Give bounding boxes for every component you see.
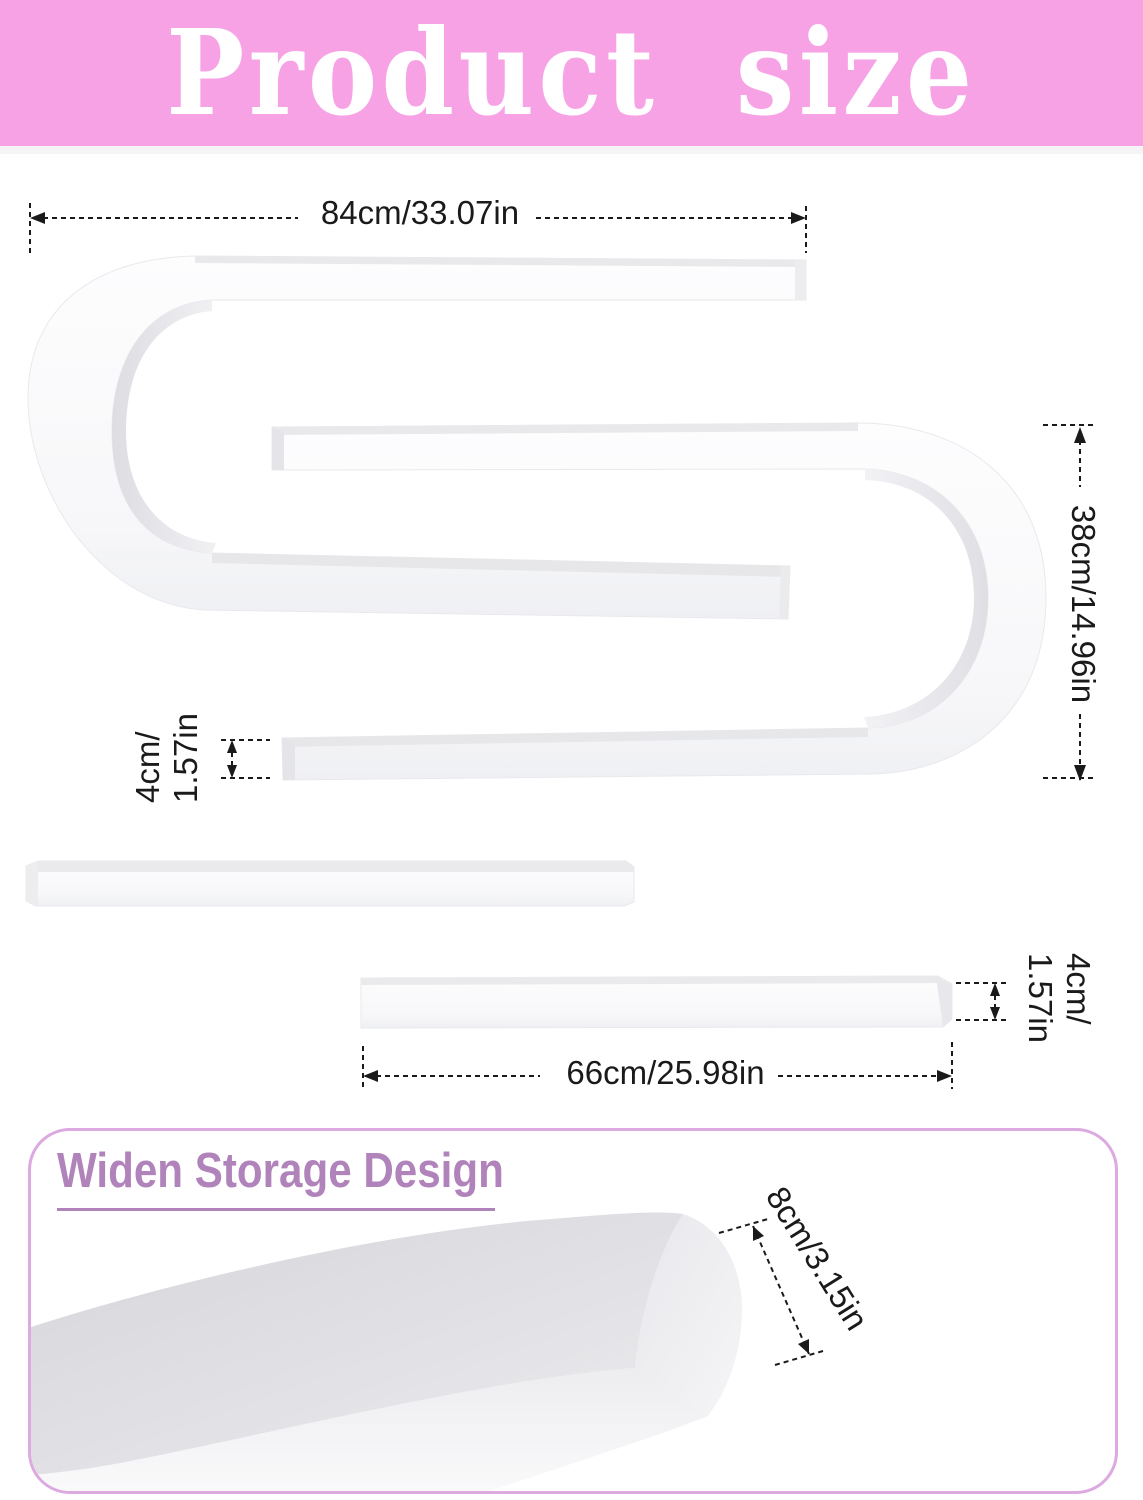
storage-card: Widen Storage Design 8cm/3.15in: [28, 1128, 1118, 1494]
loose-bar-2: [361, 976, 952, 1028]
size-diagram: [0, 0, 1143, 1120]
dim-left-thickness-arrows: [227, 740, 237, 778]
product-size-infographic: Product size: [0, 0, 1143, 1500]
dim-right-thickness-arrows: [990, 983, 1000, 1020]
dim-top-width-label: 84cm/33.07in: [300, 194, 540, 232]
dim-right-thickness-line: [956, 983, 1007, 1020]
rack-lower-bottom-end-face: [282, 738, 295, 780]
rack-lower-end-face: [272, 427, 284, 470]
storage-card-title: Widen Storage Design: [57, 1143, 504, 1199]
dim-height-label: 38cm/14.96in: [1060, 488, 1106, 720]
rack-upper-end-face: [795, 260, 806, 300]
loose-bar-1: [26, 861, 634, 906]
storage-card-underline: [57, 1208, 495, 1211]
dim-left-thickness-label: 4cm/ 1.57in: [126, 700, 208, 815]
dim-right-thickness-label: 4cm/ 1.57in: [1018, 942, 1100, 1054]
dim-bottom-width-label: 66cm/25.98in: [548, 1054, 783, 1092]
loose-bar-1-bevel: [26, 861, 634, 872]
dim-left-thickness-line: [221, 740, 270, 778]
loose-bar-1-end-face: [26, 861, 38, 906]
